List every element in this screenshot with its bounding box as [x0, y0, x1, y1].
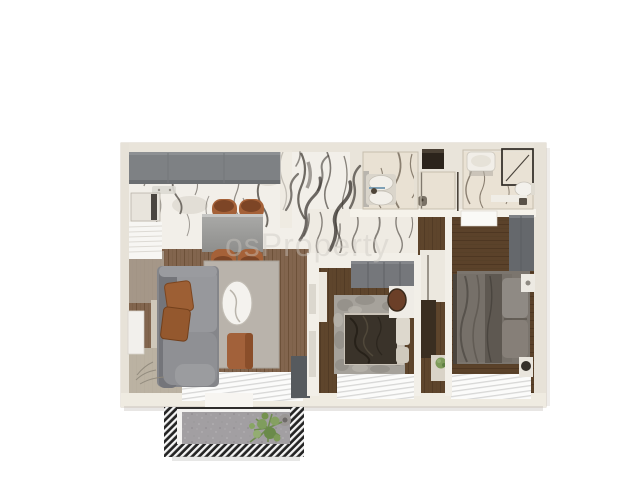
svg-text:osProperty: osProperty: [225, 227, 390, 263]
